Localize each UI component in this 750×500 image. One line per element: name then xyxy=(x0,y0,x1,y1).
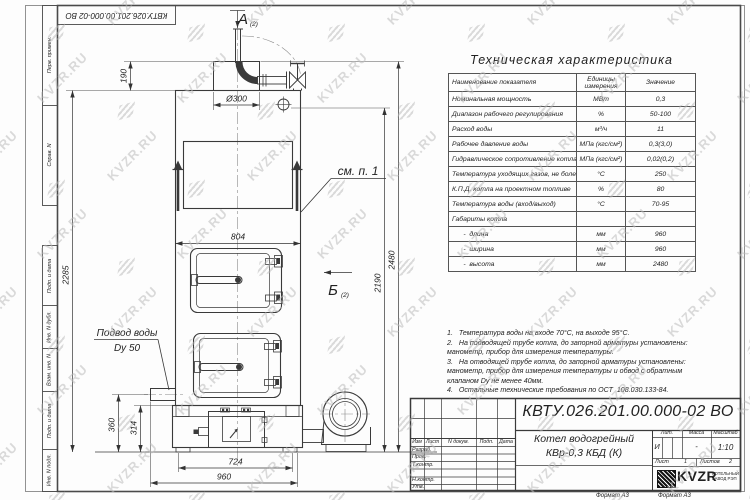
blower-fan xyxy=(303,392,371,452)
note-line: 1. Температура воды на входе 70°С, на вы… xyxy=(447,329,688,339)
corner-designation: КВТУ.026.201.00.000-02 ВО xyxy=(58,10,175,19)
role-tkontr: Т.контр. xyxy=(412,463,434,469)
scale-value: 1:10 xyxy=(711,444,740,453)
format-note-right: Формат А3 xyxy=(658,493,691,500)
spec-cell-name: Температура воды (вход/выход) xyxy=(449,197,577,212)
spec-col-unit: Единицы измерения xyxy=(577,74,626,92)
dim-label-190: 190 xyxy=(119,69,129,83)
stamp-podp-data-1: Подп. и дата xyxy=(47,246,53,306)
spec-cell-value: 50-100 xyxy=(626,107,696,122)
spec-row: Номинальная мощностьМВт0,3 xyxy=(449,92,696,107)
spec-cell-name: - ширина xyxy=(449,242,577,257)
product-name-line1: Котел водогрейный xyxy=(516,434,652,446)
spec-cell-value: 0,3(3,0) xyxy=(626,137,696,152)
spec-row: - ширинамм960 xyxy=(449,242,696,257)
spec-cell-unit: мм xyxy=(577,257,626,272)
spec-cell-value: 11 xyxy=(626,122,696,137)
spec-cell-unit: °С xyxy=(577,167,626,182)
ash-door xyxy=(194,408,268,448)
spec-cell-unit: м³/ч xyxy=(577,122,626,137)
stamp-perv-primen: Перв. примен. xyxy=(47,5,53,105)
fan-duct xyxy=(303,430,324,443)
pipe-elbow xyxy=(236,62,258,84)
see-item-note: см. п. 1 xyxy=(338,164,379,178)
water-inlet-label-1: Подвод воды xyxy=(97,328,158,339)
stamp-inv-dubl: Инв. N дубл. xyxy=(47,306,53,349)
water-inlet-label-2: Dу 50 xyxy=(114,343,141,354)
spec-cell-name: Расход воды xyxy=(449,122,577,137)
role-utv: Утв. xyxy=(412,485,424,491)
drawing-sheet: Ø300 190 2285 2190 2480 804 360 314 724 … xyxy=(0,0,750,500)
note-line: 2. На подводящей трубе котла, до запорно… xyxy=(447,339,688,349)
spec-cell-unit: мм xyxy=(577,227,626,242)
note-line: манометр, прибор для измерения температу… xyxy=(447,367,688,377)
dim-label-314: 314 xyxy=(129,421,139,435)
stamp-vzam-inv: Взам. инв. N xyxy=(47,349,53,392)
scale-label: Масштаб xyxy=(711,431,740,437)
mass-label: Масса xyxy=(682,431,711,437)
spec-row: Гидравлическое сопротивление котлаМПа (к… xyxy=(449,152,696,167)
col-list: Лист xyxy=(424,440,441,446)
note-line: 4. Остальные технические требования по О… xyxy=(447,386,688,396)
dim-label-2480: 2480 xyxy=(387,250,397,270)
role-nkontr: Н.контр. xyxy=(412,478,435,484)
spec-cell-unit: °С xyxy=(577,197,626,212)
format-note-left: Формат А3 xyxy=(596,493,629,500)
spec-col-name: Наименование показателя xyxy=(449,74,577,92)
logo-subtitle-2: ЗАВОД РЭП xyxy=(712,477,737,482)
spec-cell-value: 2480 xyxy=(626,257,696,272)
spec-cell-unit: МПа (кгс/см²) xyxy=(577,137,626,152)
spec-col-value: Значение xyxy=(626,74,696,92)
view-a-sheet-ref: (2) xyxy=(250,21,258,28)
spec-cell-value: 0,3 xyxy=(626,92,696,107)
role-prov: Пров. xyxy=(412,455,426,461)
spec-row: Расход водым³/ч11 xyxy=(449,122,696,137)
spec-cell-name: Габариты котла xyxy=(449,212,577,227)
spec-cell-name: Температура уходящих газов, не более xyxy=(449,167,577,182)
lit-value: И xyxy=(652,443,662,451)
mass-value: - xyxy=(682,443,711,451)
dim-label-804: 804 xyxy=(231,232,245,242)
col-date: Дата xyxy=(497,440,515,446)
spec-cell-name: Рабочее давление воды xyxy=(449,137,577,152)
dim-label-724: 724 xyxy=(228,457,242,467)
sheet-value: 1 xyxy=(684,460,687,466)
view-b-label: Б xyxy=(328,282,338,299)
spec-cell-value xyxy=(626,212,696,227)
spec-cell-name: Номинальная мощность xyxy=(449,92,577,107)
stamp-inv-podl: Инв. N подл. xyxy=(47,450,53,491)
spec-row: - длинамм960 xyxy=(449,227,696,242)
spec-row: Температура уходящих газов, не более°С25… xyxy=(449,167,696,182)
dim-label-fi300: Ø300 xyxy=(225,94,247,104)
lit-label: Лит. xyxy=(652,431,682,437)
spec-row: К.П.Д. котла на проектном топливе%80 xyxy=(449,182,696,197)
view-b-sheet-ref: (2) xyxy=(341,292,349,299)
spec-row: Температура воды (вход/выход)°С70-95 xyxy=(449,197,696,212)
col-sign: Подп. xyxy=(476,440,497,446)
middle-door xyxy=(191,249,283,313)
dim-label-2190: 2190 xyxy=(373,273,383,293)
note-line: манометр, прибор для измерения температу… xyxy=(447,348,688,358)
spec-cell-name: Диапазон рабочего регулирования xyxy=(449,107,577,122)
spec-cell-value: 0,02(0,2) xyxy=(626,152,696,167)
technical-notes: 1. Температура воды на входе 70°С, на вы… xyxy=(447,329,688,396)
spec-table: Наименование показателя Единицы измерени… xyxy=(448,73,696,272)
spec-row: - высотамм2480 xyxy=(449,257,696,272)
spec-cell-value: 250 xyxy=(626,167,696,182)
kvzr-logo-icon xyxy=(657,470,676,488)
dim-label-960: 960 xyxy=(217,472,231,482)
dimension-labels: Ø300 190 2285 2190 2480 804 360 314 724 … xyxy=(61,11,397,482)
spec-cell-name: Гидравлическое сопротивление котла xyxy=(449,152,577,167)
stamp-sprav-n: Справ. N xyxy=(47,105,53,205)
ash-door-handle xyxy=(199,428,209,436)
spec-cell-value: 70-95 xyxy=(626,197,696,212)
spec-cell-unit: МПа (кгс/см²) xyxy=(577,152,626,167)
sheets-value: 2 xyxy=(729,460,732,466)
spec-cell-unit: % xyxy=(577,182,626,197)
spec-cell-value: 960 xyxy=(626,242,696,257)
title-block-designation: КВТУ.026.201.00.000-02 ВО xyxy=(517,403,739,421)
spec-cell-value: 960 xyxy=(626,227,696,242)
stamp-podp-data-2: Подп. и дата xyxy=(47,392,53,450)
spec-row: Габариты котла xyxy=(449,212,696,227)
note-line: клапаном Dу не менее 40мм. xyxy=(447,377,688,387)
spec-cell-name: - длина xyxy=(449,227,577,242)
note-line: 3. На отводящей трубе котла, до запорной… xyxy=(447,358,688,368)
spec-cell-name: К.П.Д. котла на проектном топливе xyxy=(449,182,577,197)
dim-label-2285: 2285 xyxy=(61,265,71,285)
spec-cell-unit: МВт xyxy=(577,92,626,107)
sheets-label: Листов xyxy=(700,460,720,466)
spec-row: Диапазон рабочего регулирования%50-100 xyxy=(449,107,696,122)
col-izm: Изм xyxy=(410,440,424,446)
sheet-label: Лист xyxy=(655,460,669,466)
spec-cell-unit: % xyxy=(577,107,626,122)
dim-label-360: 360 xyxy=(107,418,117,432)
spec-cell-unit xyxy=(577,212,626,227)
spec-title: Техническая характеристика xyxy=(448,54,695,68)
product-name-line2: КВр-0,3 КБД (К) xyxy=(516,448,652,460)
view-a-label: А xyxy=(237,11,248,28)
col-doc: N докум. xyxy=(441,440,476,446)
spec-cell-unit: мм xyxy=(577,242,626,257)
spec-cell-value: 80 xyxy=(626,182,696,197)
spec-row: Рабочее давление водыМПа (кгс/см²)0,3(3,… xyxy=(449,137,696,152)
spec-header-row: Наименование показателя Единицы измерени… xyxy=(449,74,696,92)
spec-cell-name: - высота xyxy=(449,257,577,272)
role-razrab: Разраб. xyxy=(412,448,432,454)
